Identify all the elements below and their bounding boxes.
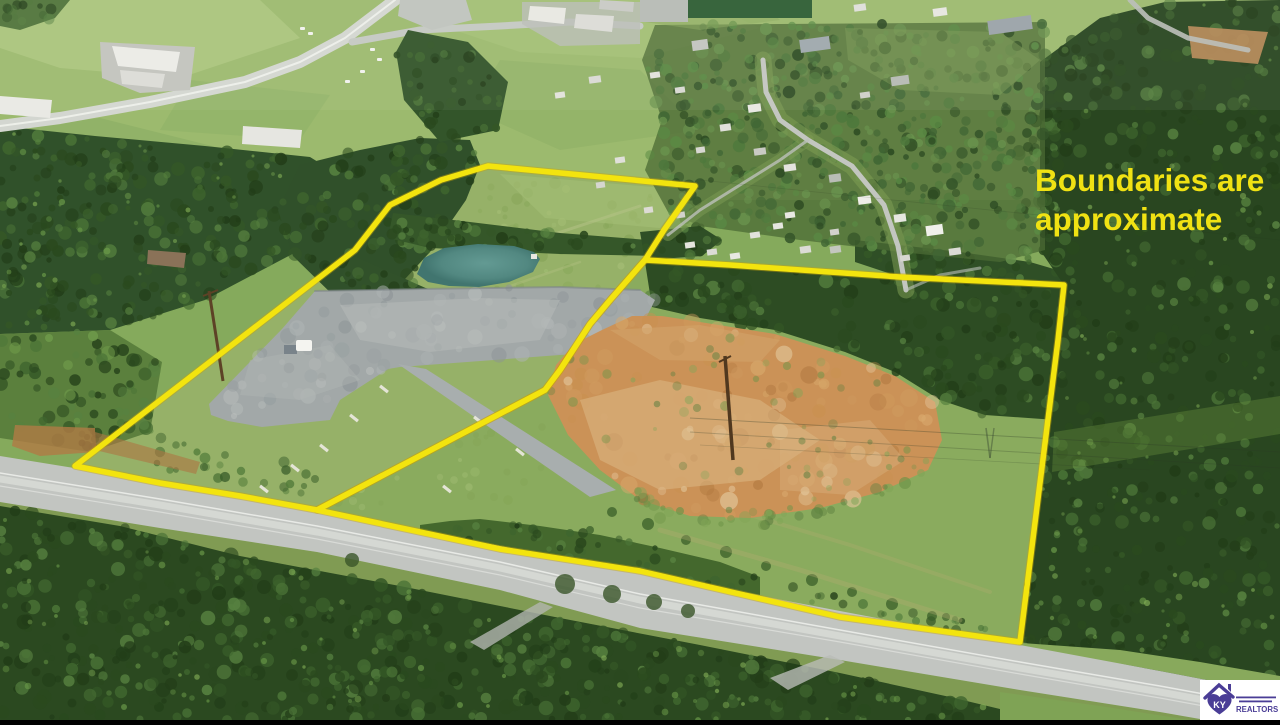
svg-text:REALTORS: REALTORS (1236, 705, 1278, 714)
svg-text:approximate: approximate (1035, 201, 1222, 237)
svg-text:KY: KY (1213, 700, 1226, 710)
svg-text:Boundaries are: Boundaries are (1035, 162, 1264, 198)
